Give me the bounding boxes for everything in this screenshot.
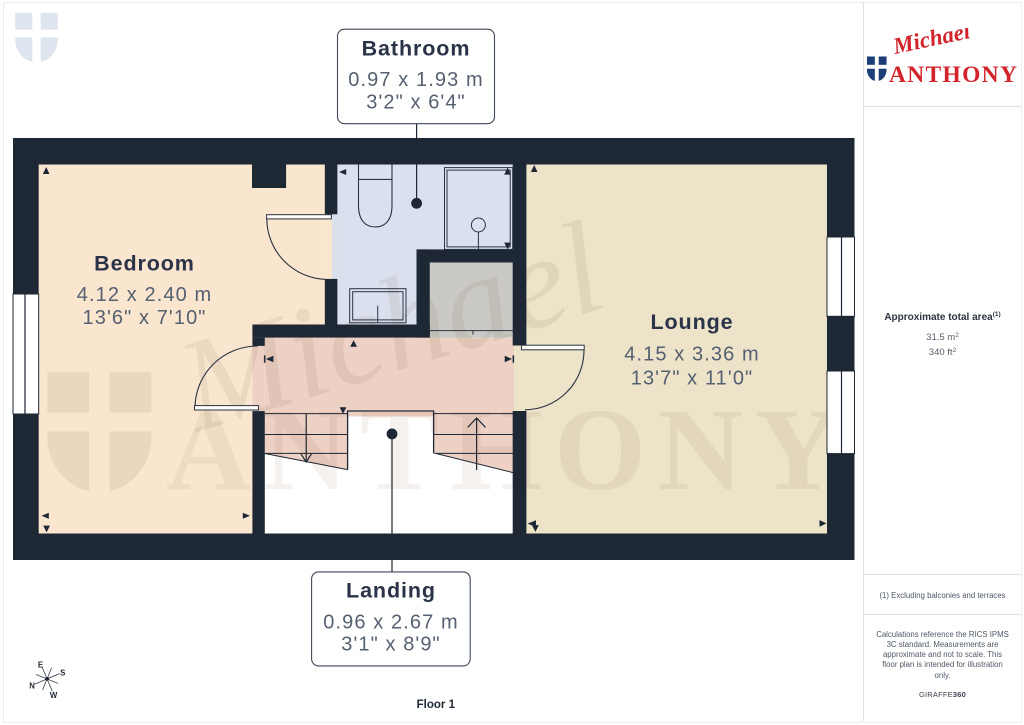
svg-text:4.15 x 3.36 m: 4.15 x 3.36 m [624,344,759,366]
svg-text:E: E [38,660,43,669]
svg-text:0.97 x 1.93 m: 0.97 x 1.93 m [348,69,483,91]
svg-text:3'2" x 6'4": 3'2" x 6'4" [366,92,466,114]
svg-text:13'6" x 7'10": 13'6" x 7'10" [83,307,207,329]
svg-text:ANTHONY: ANTHONY [889,62,1018,86]
svg-text:S: S [60,669,65,678]
svg-text:13'7" x 11'0": 13'7" x 11'0" [631,367,754,389]
svg-text:Bedroom: Bedroom [94,252,195,276]
svg-text:4.12 x 2.40 m: 4.12 x 2.40 m [77,284,212,306]
svg-text:Lounge: Lounge [650,310,733,334]
svg-text:3'1" x 8'9": 3'1" x 8'9" [341,634,441,656]
svg-text:Floor 1: Floor 1 [417,699,456,711]
svg-text:W: W [50,691,58,700]
svg-text:Bathroom: Bathroom [362,37,471,61]
svg-text:ANTHONY: ANTHONY [166,384,852,515]
svg-text:0.96 x 2.67 m: 0.96 x 2.67 m [323,611,458,633]
svg-text:Michael: Michael [890,28,973,59]
svg-text:Landing: Landing [346,579,436,603]
svg-text:N: N [29,682,35,691]
